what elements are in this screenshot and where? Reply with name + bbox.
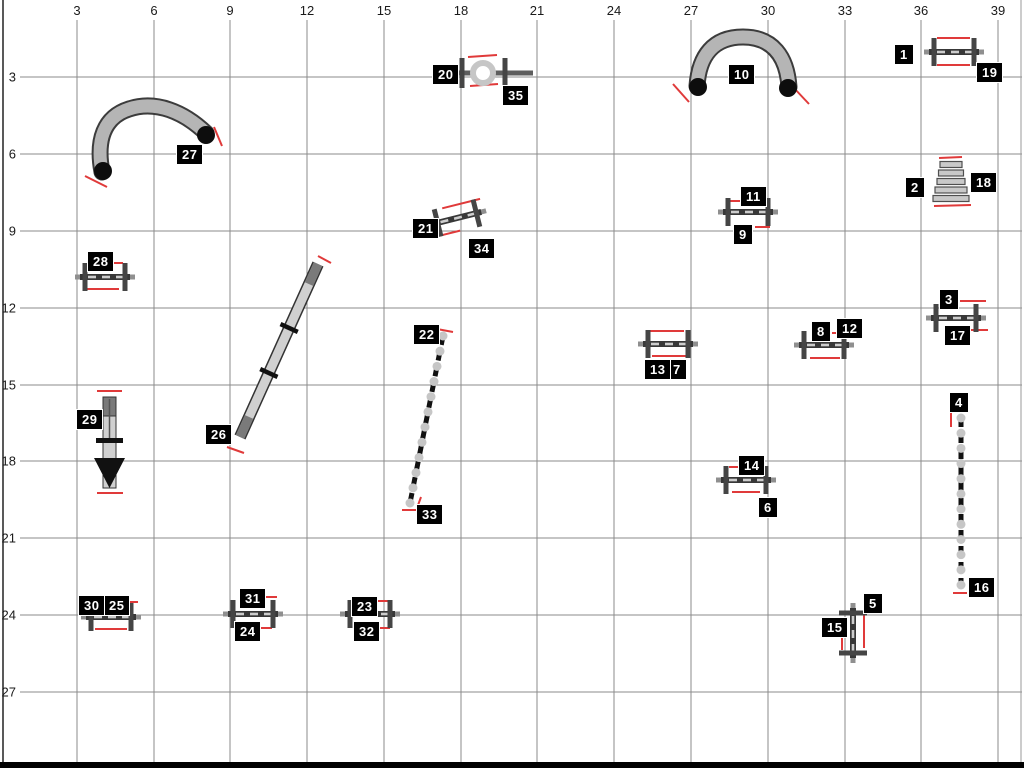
obstacle-number-24: 24 xyxy=(234,621,261,642)
obstacle-number-10: 10 xyxy=(728,64,755,85)
axis-tick-top-6: 6 xyxy=(150,4,157,17)
axis-tick-left-21: 21 xyxy=(0,532,16,545)
course-canvas xyxy=(0,0,1024,768)
obstacle-number-18: 18 xyxy=(970,172,997,193)
agility-course-map: 36912151821242730333639 369121518212427 … xyxy=(0,0,1024,768)
obstacle-number-33: 33 xyxy=(416,504,443,525)
axis-tick-top-27: 27 xyxy=(684,4,698,17)
obstacle-number-1: 1 xyxy=(894,44,914,65)
axis-tick-top-33: 33 xyxy=(838,4,852,17)
obstacle-number-35: 35 xyxy=(502,85,529,106)
obstacle-number-6: 6 xyxy=(758,497,778,518)
obstacle-number-4: 4 xyxy=(949,392,969,413)
axis-tick-left-6: 6 xyxy=(0,148,16,161)
axis-tick-top-24: 24 xyxy=(607,4,621,17)
obstacle-number-28: 28 xyxy=(87,251,114,272)
obstacle-number-13: 13 xyxy=(644,359,671,380)
obstacle-number-17: 17 xyxy=(944,325,971,346)
obstacle-number-21: 21 xyxy=(412,218,439,239)
axis-tick-left-27: 27 xyxy=(0,686,16,699)
obstacle-number-3: 3 xyxy=(939,289,959,310)
obstacle-number-15: 15 xyxy=(821,617,848,638)
axis-tick-left-12: 12 xyxy=(0,302,16,315)
obstacle-number-32: 32 xyxy=(353,621,380,642)
axis-tick-left-24: 24 xyxy=(0,609,16,622)
obstacle-jump-13-7 xyxy=(638,330,698,358)
obstacle-number-20: 20 xyxy=(432,64,459,85)
obstacle-number-25: 25 xyxy=(103,595,130,616)
obstacle-number-8: 8 xyxy=(811,321,831,342)
obstacle-number-27: 27 xyxy=(176,144,203,165)
obstacle-number-5: 5 xyxy=(863,593,883,614)
obstacle-number-19: 19 xyxy=(976,62,1003,83)
obstacle-number-30: 30 xyxy=(78,595,105,616)
axis-tick-left-3: 3 xyxy=(0,71,16,84)
obstacle-number-29: 29 xyxy=(76,409,103,430)
axis-tick-left-18: 18 xyxy=(0,455,16,468)
obstacle-number-16: 16 xyxy=(968,577,995,598)
obstacle-number-23: 23 xyxy=(351,596,378,617)
axis-tick-left-15: 15 xyxy=(0,379,16,392)
axis-tick-top-12: 12 xyxy=(300,4,314,17)
obstacle-number-2: 2 xyxy=(905,177,925,198)
axis-tick-top-15: 15 xyxy=(377,4,391,17)
obstacle-number-22: 22 xyxy=(413,324,440,345)
obstacle-number-11: 11 xyxy=(740,186,767,207)
obstacle-number-31: 31 xyxy=(239,588,266,609)
axis-tick-top-3: 3 xyxy=(73,4,80,17)
obstacle-number-26: 26 xyxy=(205,424,232,445)
axis-tick-top-18: 18 xyxy=(454,4,468,17)
obstacle-number-9: 9 xyxy=(733,224,753,245)
obstacle-long-jump-2-18 xyxy=(933,157,971,206)
obstacle-weave-poles-4-16 xyxy=(951,412,968,593)
obstacle-tire-jump-20-35 xyxy=(455,55,533,88)
axis-tick-top-21: 21 xyxy=(530,4,544,17)
axis-tick-top-39: 39 xyxy=(991,4,1005,17)
obstacle-number-12: 12 xyxy=(836,318,863,339)
obstacle-dogwalk-26 xyxy=(227,256,331,453)
obstacle-number-14: 14 xyxy=(738,455,765,476)
axis-tick-left-9: 9 xyxy=(0,225,16,238)
axis-tick-top-36: 36 xyxy=(914,4,928,17)
axis-tick-top-30: 30 xyxy=(761,4,775,17)
obstacle-weave-poles-22-33 xyxy=(402,329,453,510)
obstacle-teeter-29 xyxy=(94,391,125,493)
obstacle-jump-1-19 xyxy=(924,38,984,66)
grid xyxy=(0,0,1024,768)
obstacle-number-34: 34 xyxy=(468,238,495,259)
axis-tick-top-9: 9 xyxy=(226,4,233,17)
